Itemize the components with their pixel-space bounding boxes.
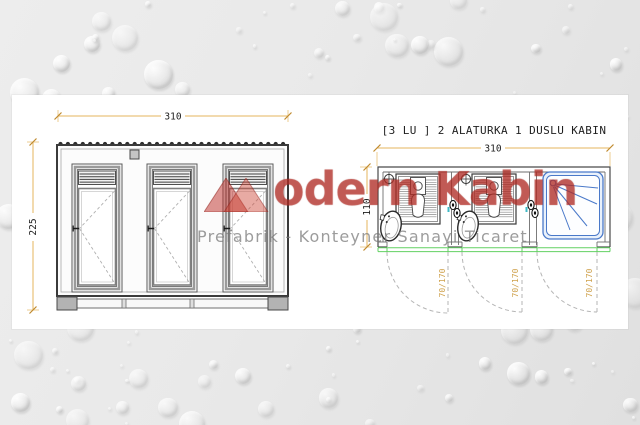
water-droplet: [397, 3, 401, 7]
plan-width-label: 310: [484, 144, 501, 155]
water-droplet: [531, 44, 541, 54]
water-droplet: [116, 401, 129, 414]
squat-toilet-1: [396, 174, 440, 224]
door-swing-label-1: 70/170: [438, 268, 447, 297]
water-droplet: [611, 370, 614, 373]
water-droplet: [52, 348, 58, 354]
water-droplet: [125, 379, 129, 383]
water-droplet: [50, 367, 55, 372]
water-droplet: [129, 369, 148, 388]
elevation-height-dimension: 225: [27, 139, 39, 314]
fitting-mark: [448, 207, 450, 212]
water-droplet: [568, 4, 573, 9]
water-droplet: [9, 339, 12, 342]
shower-drain: [550, 180, 556, 186]
water-droplet: [236, 27, 241, 32]
knob-center: [452, 203, 454, 207]
water-droplet: [434, 37, 463, 66]
cabin-doors: [72, 164, 273, 292]
water-droplet: [135, 330, 139, 334]
cabin-door-2: [147, 164, 197, 292]
water-droplet: [108, 407, 111, 410]
technical-drawings: 310 225: [12, 95, 628, 329]
base-splice: [190, 299, 194, 308]
water-droplet: [263, 11, 266, 14]
water-droplet: [66, 369, 69, 372]
shower-tray: [543, 172, 603, 239]
elevation-width-label: 310: [164, 112, 181, 123]
water-droplet: [127, 341, 130, 344]
water-droplet: [120, 364, 123, 367]
squat-toilet-2: [472, 174, 516, 224]
cabin-door-3: [223, 164, 273, 292]
water-droplet: [417, 385, 423, 391]
water-droplet: [286, 364, 290, 368]
front-elevation-drawing: 310 225: [27, 110, 292, 314]
door-swings: 70/170 70/170 70/170: [387, 252, 597, 313]
floor-drain-2: [460, 173, 473, 186]
roof-vent: [130, 150, 139, 159]
water-droplet: [535, 370, 549, 384]
base-corner-block: [268, 297, 288, 310]
water-droplet: [623, 398, 638, 413]
water-droplet: [562, 26, 570, 34]
plan-title: [3 LU ] 2 ALATURKA 1 DUSLU KABIN: [382, 124, 607, 137]
water-droplet: [365, 419, 375, 425]
door-swing-label-2: 70/170: [511, 268, 520, 297]
water-droplet: [145, 1, 151, 7]
water-droplet: [632, 416, 635, 419]
water-droplet: [179, 411, 205, 425]
water-droplet: [332, 373, 336, 377]
water-droplet: [610, 58, 623, 71]
water-droplet: [513, 91, 516, 94]
threshold-sill: [378, 248, 610, 252]
water-droplet: [450, 0, 466, 9]
water-droplet: [326, 346, 331, 351]
knob-center: [534, 211, 536, 215]
drawing-sheet: 310 225: [12, 95, 628, 329]
knob-center: [530, 203, 532, 207]
water-droplet: [14, 341, 43, 370]
water-droplet: [92, 12, 111, 31]
elevation-width-dimension: 310: [55, 110, 292, 123]
water-droplet: [314, 48, 325, 59]
water-droplet: [209, 360, 219, 370]
water-droplet: [507, 362, 530, 385]
cabin-door-1: [72, 164, 122, 292]
toilet-pan: [488, 194, 501, 217]
flush-hole: [490, 182, 498, 190]
water-droplet: [480, 7, 485, 12]
water-droplet: [335, 1, 350, 16]
water-droplet: [53, 55, 70, 72]
plan-depth-label: 110: [362, 198, 373, 215]
water-droplet: [308, 73, 313, 78]
water-droplet: [144, 60, 173, 89]
plan-depth-dimension: 110: [360, 164, 373, 251]
fitting-mark: [526, 207, 528, 212]
page-background: 310 225: [0, 0, 640, 425]
water-droplet: [66, 409, 89, 425]
water-droplet: [253, 44, 256, 47]
water-droplet: [71, 376, 86, 391]
water-droplet: [370, 3, 398, 31]
water-droplet: [198, 375, 212, 389]
water-droplet: [411, 36, 430, 55]
water-droplet: [112, 25, 138, 51]
water-droplet: [446, 353, 450, 357]
elevation-height-label: 225: [28, 218, 39, 235]
water-droplet: [600, 72, 603, 75]
water-droplet: [319, 388, 339, 408]
water-droplet: [385, 34, 408, 57]
water-droplet: [592, 362, 595, 365]
toilet-pan: [412, 194, 425, 217]
door-swing-label-3: 70/170: [585, 268, 594, 297]
water-droplet: [235, 368, 251, 384]
water-droplet: [624, 47, 628, 51]
water-droplet: [564, 368, 572, 376]
door-glass-panel: [79, 189, 116, 286]
floor-plan-drawing: [3 LU ] 2 ALATURKA 1 DUSLU KABIN 310: [360, 124, 614, 313]
door-jamb-stubs: [378, 242, 610, 247]
water-droplet: [356, 340, 359, 343]
water-droplet: [158, 398, 178, 418]
tap-spout: [380, 215, 384, 221]
water-droplet: [353, 34, 361, 42]
door-glass-panel: [154, 189, 191, 286]
plan-width-dimension: 310: [374, 143, 614, 167]
water-droplet: [290, 3, 296, 9]
water-droplet: [570, 379, 573, 382]
water-droplet: [56, 406, 63, 413]
flush-hole: [414, 182, 422, 190]
knob-center: [456, 211, 458, 215]
water-droplet: [258, 401, 274, 417]
base-skid: [57, 297, 288, 310]
base-corner-block: [57, 297, 77, 310]
water-droplet: [11, 393, 30, 412]
plan-fixtures: [376, 173, 538, 243]
floor-drain-1: [383, 173, 396, 186]
water-droplet: [325, 55, 330, 60]
water-droplet: [445, 394, 453, 402]
base-splice: [122, 299, 126, 308]
water-droplet: [479, 357, 491, 369]
door-glass-panel: [230, 189, 267, 286]
